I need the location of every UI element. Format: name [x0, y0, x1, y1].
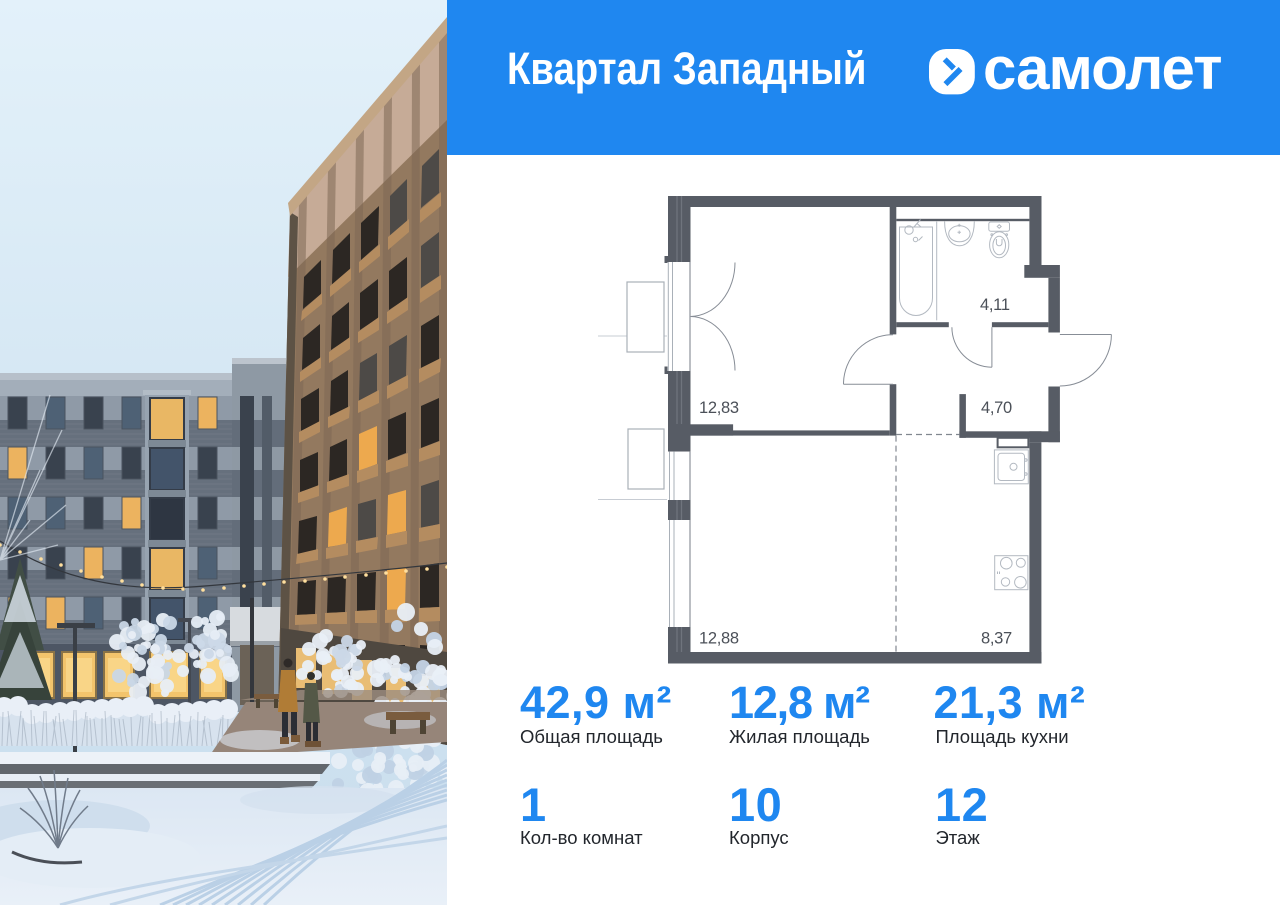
svg-text:8,37: 8,37 — [981, 630, 1012, 648]
svg-text:12,83: 12,83 — [699, 399, 739, 417]
svg-text:4,11: 4,11 — [980, 296, 1010, 314]
svg-text:12,88: 12,88 — [699, 630, 739, 648]
svg-text:4,70: 4,70 — [981, 399, 1012, 417]
